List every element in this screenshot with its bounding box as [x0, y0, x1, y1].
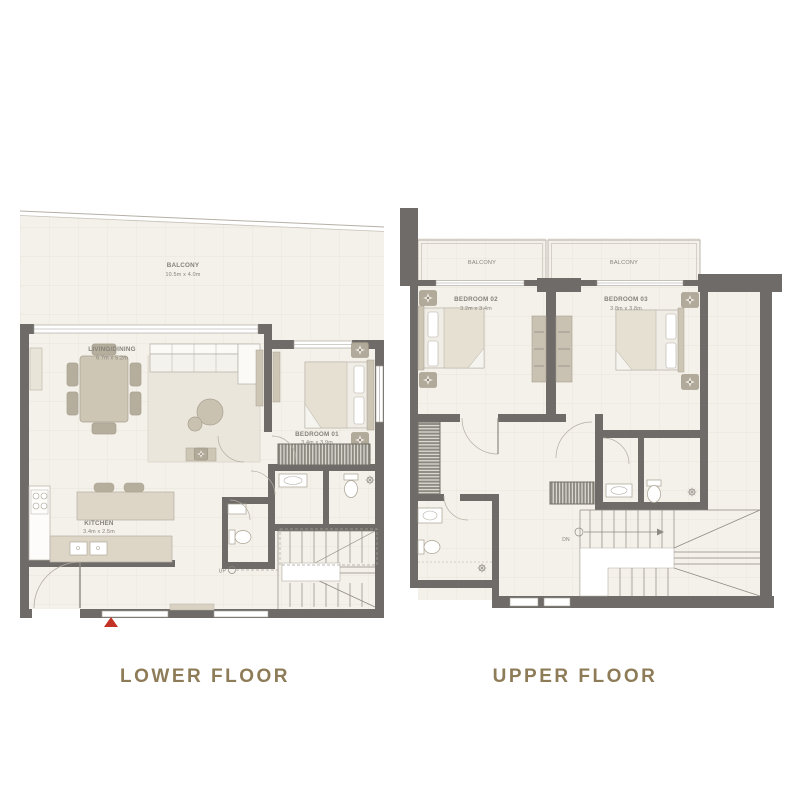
stairs-down-label: DN: [562, 537, 570, 543]
kitchen-label: KITCHEN: [84, 520, 114, 527]
floor-plan-sheet: BALCONY 10.5m x 4.0m: [0, 0, 800, 800]
living-label: LIVING/DINING: [88, 346, 135, 353]
stairs-up-label: UP: [219, 569, 227, 575]
balcony-right-label: BALCONY: [610, 260, 638, 266]
bedroom02-dims: 3.2m x 3.4m: [460, 306, 492, 312]
bedroom01-label: BEDROOM 01: [295, 431, 339, 438]
balcony-label: BALCONY: [167, 262, 200, 269]
wardrobe: [278, 444, 370, 465]
balcony-dims: 10.5m x 4.0m: [165, 272, 200, 278]
upper-floor-caption: UPPER FLOOR: [445, 666, 705, 688]
bedroom03-label: BEDROOM 03: [604, 296, 648, 303]
bedroom01-dims: 3.4m x 3.9m: [301, 440, 333, 446]
living-dims: 6.7m x 5.2m: [96, 356, 128, 362]
lower-floor-caption: LOWER FLOOR: [75, 666, 335, 688]
bedroom03-dims: 3.8m x 3.8m: [610, 306, 642, 312]
upper-floor-plan: BALCONY BALCONY: [398, 200, 784, 636]
lower-floor-plan: BALCONY 10.5m x 4.0m: [20, 198, 388, 628]
kitchen-dims: 3.4m x 2.5m: [83, 529, 115, 535]
sofa-and-rug: [148, 344, 263, 462]
entry-marker-icon: [104, 617, 118, 627]
balcony-area: [20, 211, 384, 344]
balcony-left-label: BALCONY: [468, 260, 496, 266]
bedroom02-label: BEDROOM 02: [454, 296, 498, 303]
